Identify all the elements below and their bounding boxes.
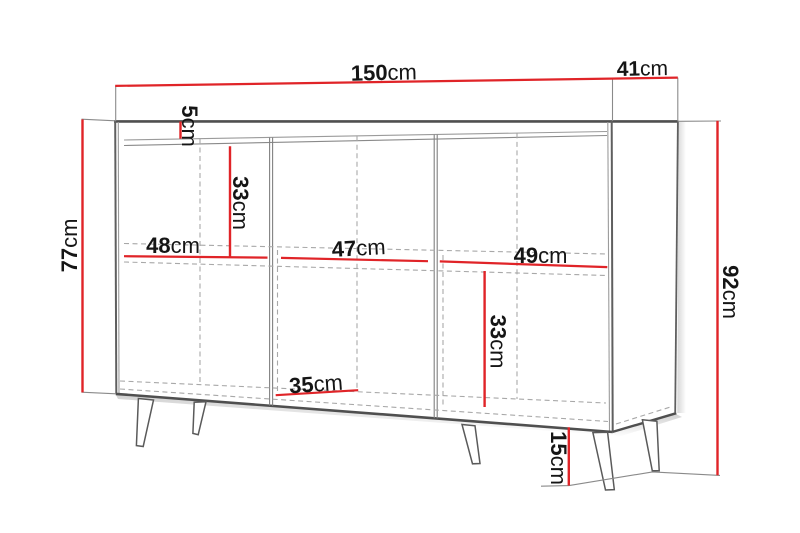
svg-text:49cm: 49cm — [514, 243, 568, 268]
svg-text:33cm: 33cm — [486, 315, 511, 369]
svg-text:77cm: 77cm — [57, 219, 82, 273]
svg-text:33cm: 33cm — [228, 176, 253, 230]
svg-text:41cm: 41cm — [617, 57, 669, 81]
svg-text:92cm: 92cm — [718, 265, 743, 319]
svg-text:47cm: 47cm — [331, 234, 386, 262]
svg-text:5cm: 5cm — [177, 105, 202, 147]
svg-text:15cm: 15cm — [546, 431, 571, 485]
svg-text:35cm: 35cm — [288, 370, 343, 399]
svg-text:150cm: 150cm — [351, 59, 418, 85]
svg-text:48cm: 48cm — [146, 233, 200, 258]
